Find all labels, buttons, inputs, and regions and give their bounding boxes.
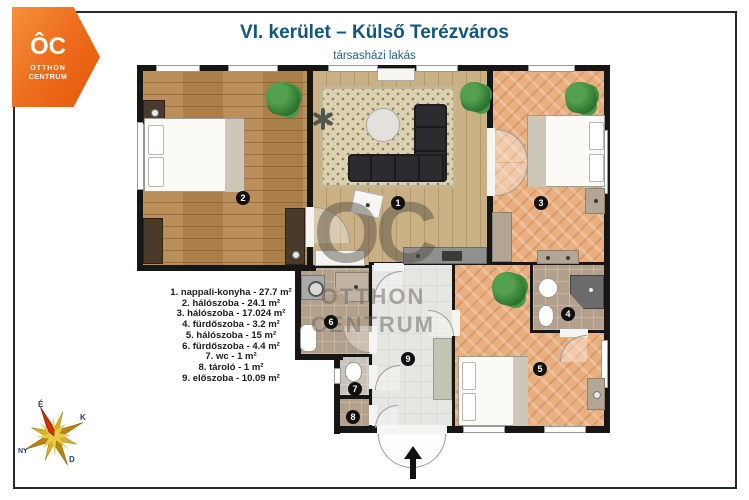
round-armchair <box>366 108 400 142</box>
bathroom-sink <box>538 278 558 298</box>
legend-item: 5. hálószoba - 15 m² <box>141 331 321 342</box>
floorplan-page: ÔC OTTHON CENTRUM VI. kerület – Külső Te… <box>0 0 749 500</box>
pillow <box>462 393 476 421</box>
door-gap <box>369 326 377 354</box>
door-gap <box>374 263 404 271</box>
double-bed <box>144 118 244 192</box>
pillow <box>462 362 476 390</box>
pillow <box>589 122 604 150</box>
compass-label-north: É <box>38 400 44 409</box>
room-badge-1: 1 <box>391 196 405 210</box>
knob <box>566 256 570 260</box>
room-badge-8: 8 <box>346 410 360 424</box>
dresser <box>537 250 579 264</box>
outer-wall-wc-left <box>334 354 340 434</box>
compass-rose: É K NY D <box>16 396 92 472</box>
wardrobe <box>285 208 305 265</box>
room-badge-7: 7 <box>348 382 362 396</box>
bed-footboard <box>528 116 546 187</box>
room-legend: 1. nappali-konyha - 27.7 m² 2. hálószoba… <box>141 288 321 384</box>
sideboard <box>377 68 415 81</box>
bed-footboard <box>225 119 244 192</box>
compass-label-east: K <box>80 413 86 422</box>
pillow <box>148 157 164 187</box>
lamp <box>594 199 598 203</box>
outer-wall-room2-bottom <box>137 265 316 271</box>
door-gap <box>487 128 495 196</box>
window <box>544 426 586 433</box>
nightstand <box>587 378 605 410</box>
pillow <box>589 154 604 182</box>
cabinet <box>492 212 512 262</box>
room-badge-5: 5 <box>533 362 547 376</box>
window <box>156 65 200 72</box>
page-title: VI. kerület – Külső Terézváros <box>0 22 749 44</box>
room-badge-4: 4 <box>561 307 575 321</box>
window <box>334 368 341 384</box>
room-badge-3: 3 <box>534 196 548 210</box>
nightstand <box>585 188 605 214</box>
sofa <box>348 154 447 182</box>
pillow <box>148 125 164 155</box>
ceiling-fan-icon <box>312 108 334 130</box>
room-badge-9: 9 <box>401 352 415 366</box>
table <box>315 250 365 266</box>
double-bed <box>527 115 605 187</box>
page-subtitle: társasházi lakás <box>0 50 749 62</box>
knob <box>593 391 601 399</box>
room-badge-6: 6 <box>324 315 338 329</box>
lamp <box>151 109 159 117</box>
toilet <box>345 362 362 382</box>
plant-icon <box>460 82 490 112</box>
entrance-arrow-stem <box>410 458 416 479</box>
logo-name-line2: CENTRUM <box>12 74 84 81</box>
sink <box>416 254 420 258</box>
stove <box>442 251 462 261</box>
window <box>228 65 278 72</box>
window <box>463 426 505 433</box>
compass-label-west: NY <box>18 448 28 455</box>
logo-name-line1: OTTHON <box>12 65 84 72</box>
room-badge-2: 2 <box>236 191 250 205</box>
hall-cabinet <box>433 338 452 400</box>
dresser <box>143 218 163 264</box>
bed-footboard <box>513 357 528 426</box>
compass-star <box>16 396 92 472</box>
decor <box>365 203 370 208</box>
plant-icon <box>266 82 300 116</box>
knob <box>546 256 550 260</box>
double-bed <box>458 356 528 426</box>
door-gap <box>306 207 314 247</box>
plant-icon <box>565 82 597 114</box>
legend-item: 9. előszoba - 10.09 m² <box>141 374 321 385</box>
logo-monogram: ÔC <box>12 33 84 61</box>
window <box>528 65 575 72</box>
window <box>328 65 378 72</box>
compass-label-south: D <box>69 455 75 464</box>
window <box>416 65 458 72</box>
knob <box>292 251 300 259</box>
plant-icon <box>492 272 526 306</box>
kitchen-counter <box>403 247 487 264</box>
toilet <box>538 305 554 327</box>
drain <box>354 285 358 289</box>
drain <box>589 288 593 292</box>
window <box>137 122 144 190</box>
